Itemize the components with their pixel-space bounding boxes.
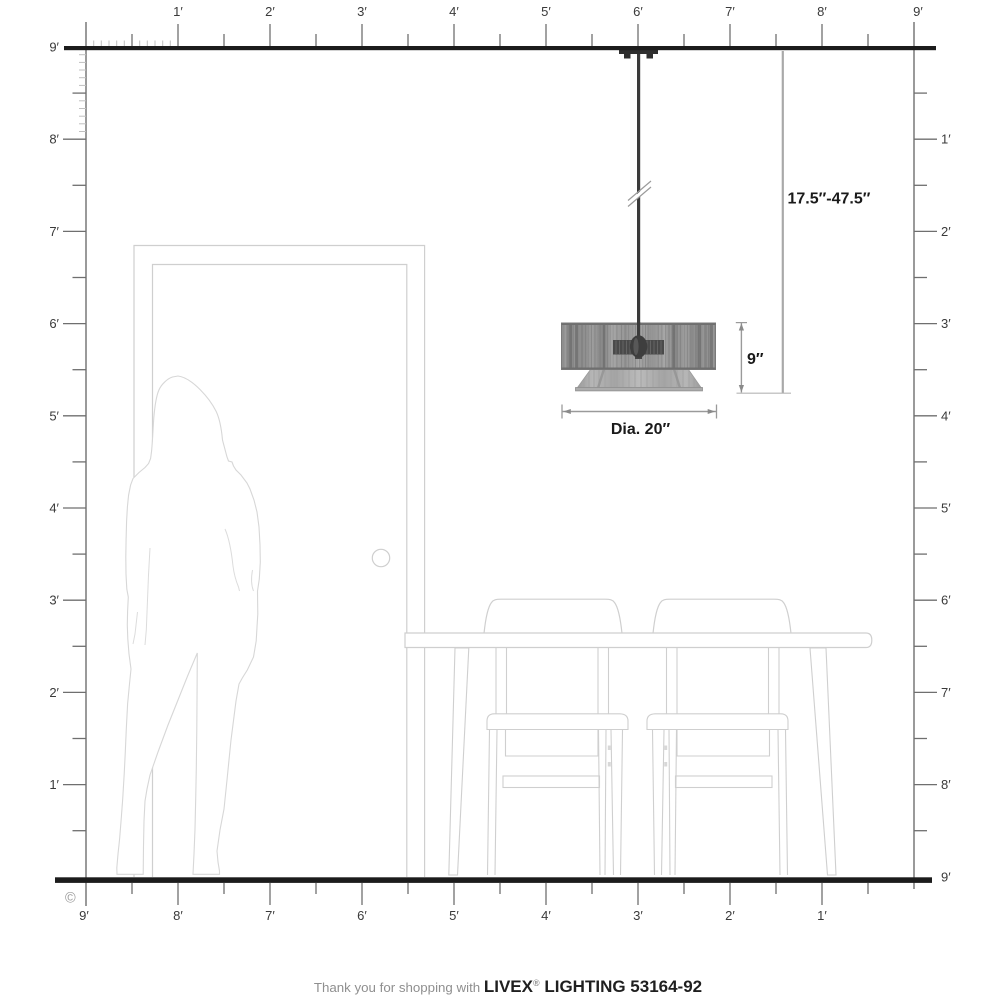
svg-text:7′: 7′ (725, 4, 735, 19)
svg-text:1′: 1′ (173, 4, 183, 19)
svg-text:Dia. 20″: Dia. 20″ (611, 421, 671, 438)
svg-text:9′: 9′ (49, 40, 59, 55)
svg-text:9′: 9′ (79, 908, 89, 923)
svg-text:7′: 7′ (265, 908, 275, 923)
svg-text:1′: 1′ (49, 777, 59, 792)
svg-text:5′: 5′ (49, 408, 59, 423)
svg-text:17.5″-47.5″: 17.5″-47.5″ (788, 191, 871, 208)
svg-text:6′: 6′ (633, 4, 643, 19)
svg-text:2′: 2′ (265, 4, 275, 19)
svg-text:4′: 4′ (941, 408, 951, 423)
svg-text:4′: 4′ (541, 908, 551, 923)
svg-text:4′: 4′ (49, 501, 59, 516)
svg-text:Thank you for shopping with LI: Thank you for shopping with LIVEX® LIGHT… (314, 977, 702, 996)
svg-text:5′: 5′ (941, 501, 951, 516)
svg-text:2′: 2′ (725, 908, 735, 923)
svg-text:9′: 9′ (941, 869, 951, 884)
svg-text:6′: 6′ (49, 316, 59, 331)
svg-text:7′: 7′ (941, 685, 951, 700)
svg-text:3′: 3′ (357, 4, 367, 19)
svg-text:2′: 2′ (49, 685, 59, 700)
svg-text:4′: 4′ (449, 4, 459, 19)
svg-text:3′: 3′ (49, 593, 59, 608)
svg-text:1′: 1′ (941, 132, 951, 147)
svg-text:6′: 6′ (357, 908, 367, 923)
svg-text:3′: 3′ (633, 908, 643, 923)
svg-text:9″: 9″ (747, 351, 764, 368)
svg-text:8′: 8′ (941, 777, 951, 792)
svg-text:8′: 8′ (817, 4, 827, 19)
svg-text:9′: 9′ (913, 4, 923, 19)
svg-text:5′: 5′ (541, 4, 551, 19)
svg-text:7′: 7′ (49, 224, 59, 239)
svg-text:5′: 5′ (449, 908, 459, 923)
svg-text:6′: 6′ (941, 593, 951, 608)
svg-text:8′: 8′ (173, 908, 183, 923)
svg-text:8′: 8′ (49, 132, 59, 147)
svg-text:3′: 3′ (941, 316, 951, 331)
svg-text:1′: 1′ (817, 908, 827, 923)
svg-text:©: © (65, 891, 76, 907)
svg-text:2′: 2′ (941, 224, 951, 239)
